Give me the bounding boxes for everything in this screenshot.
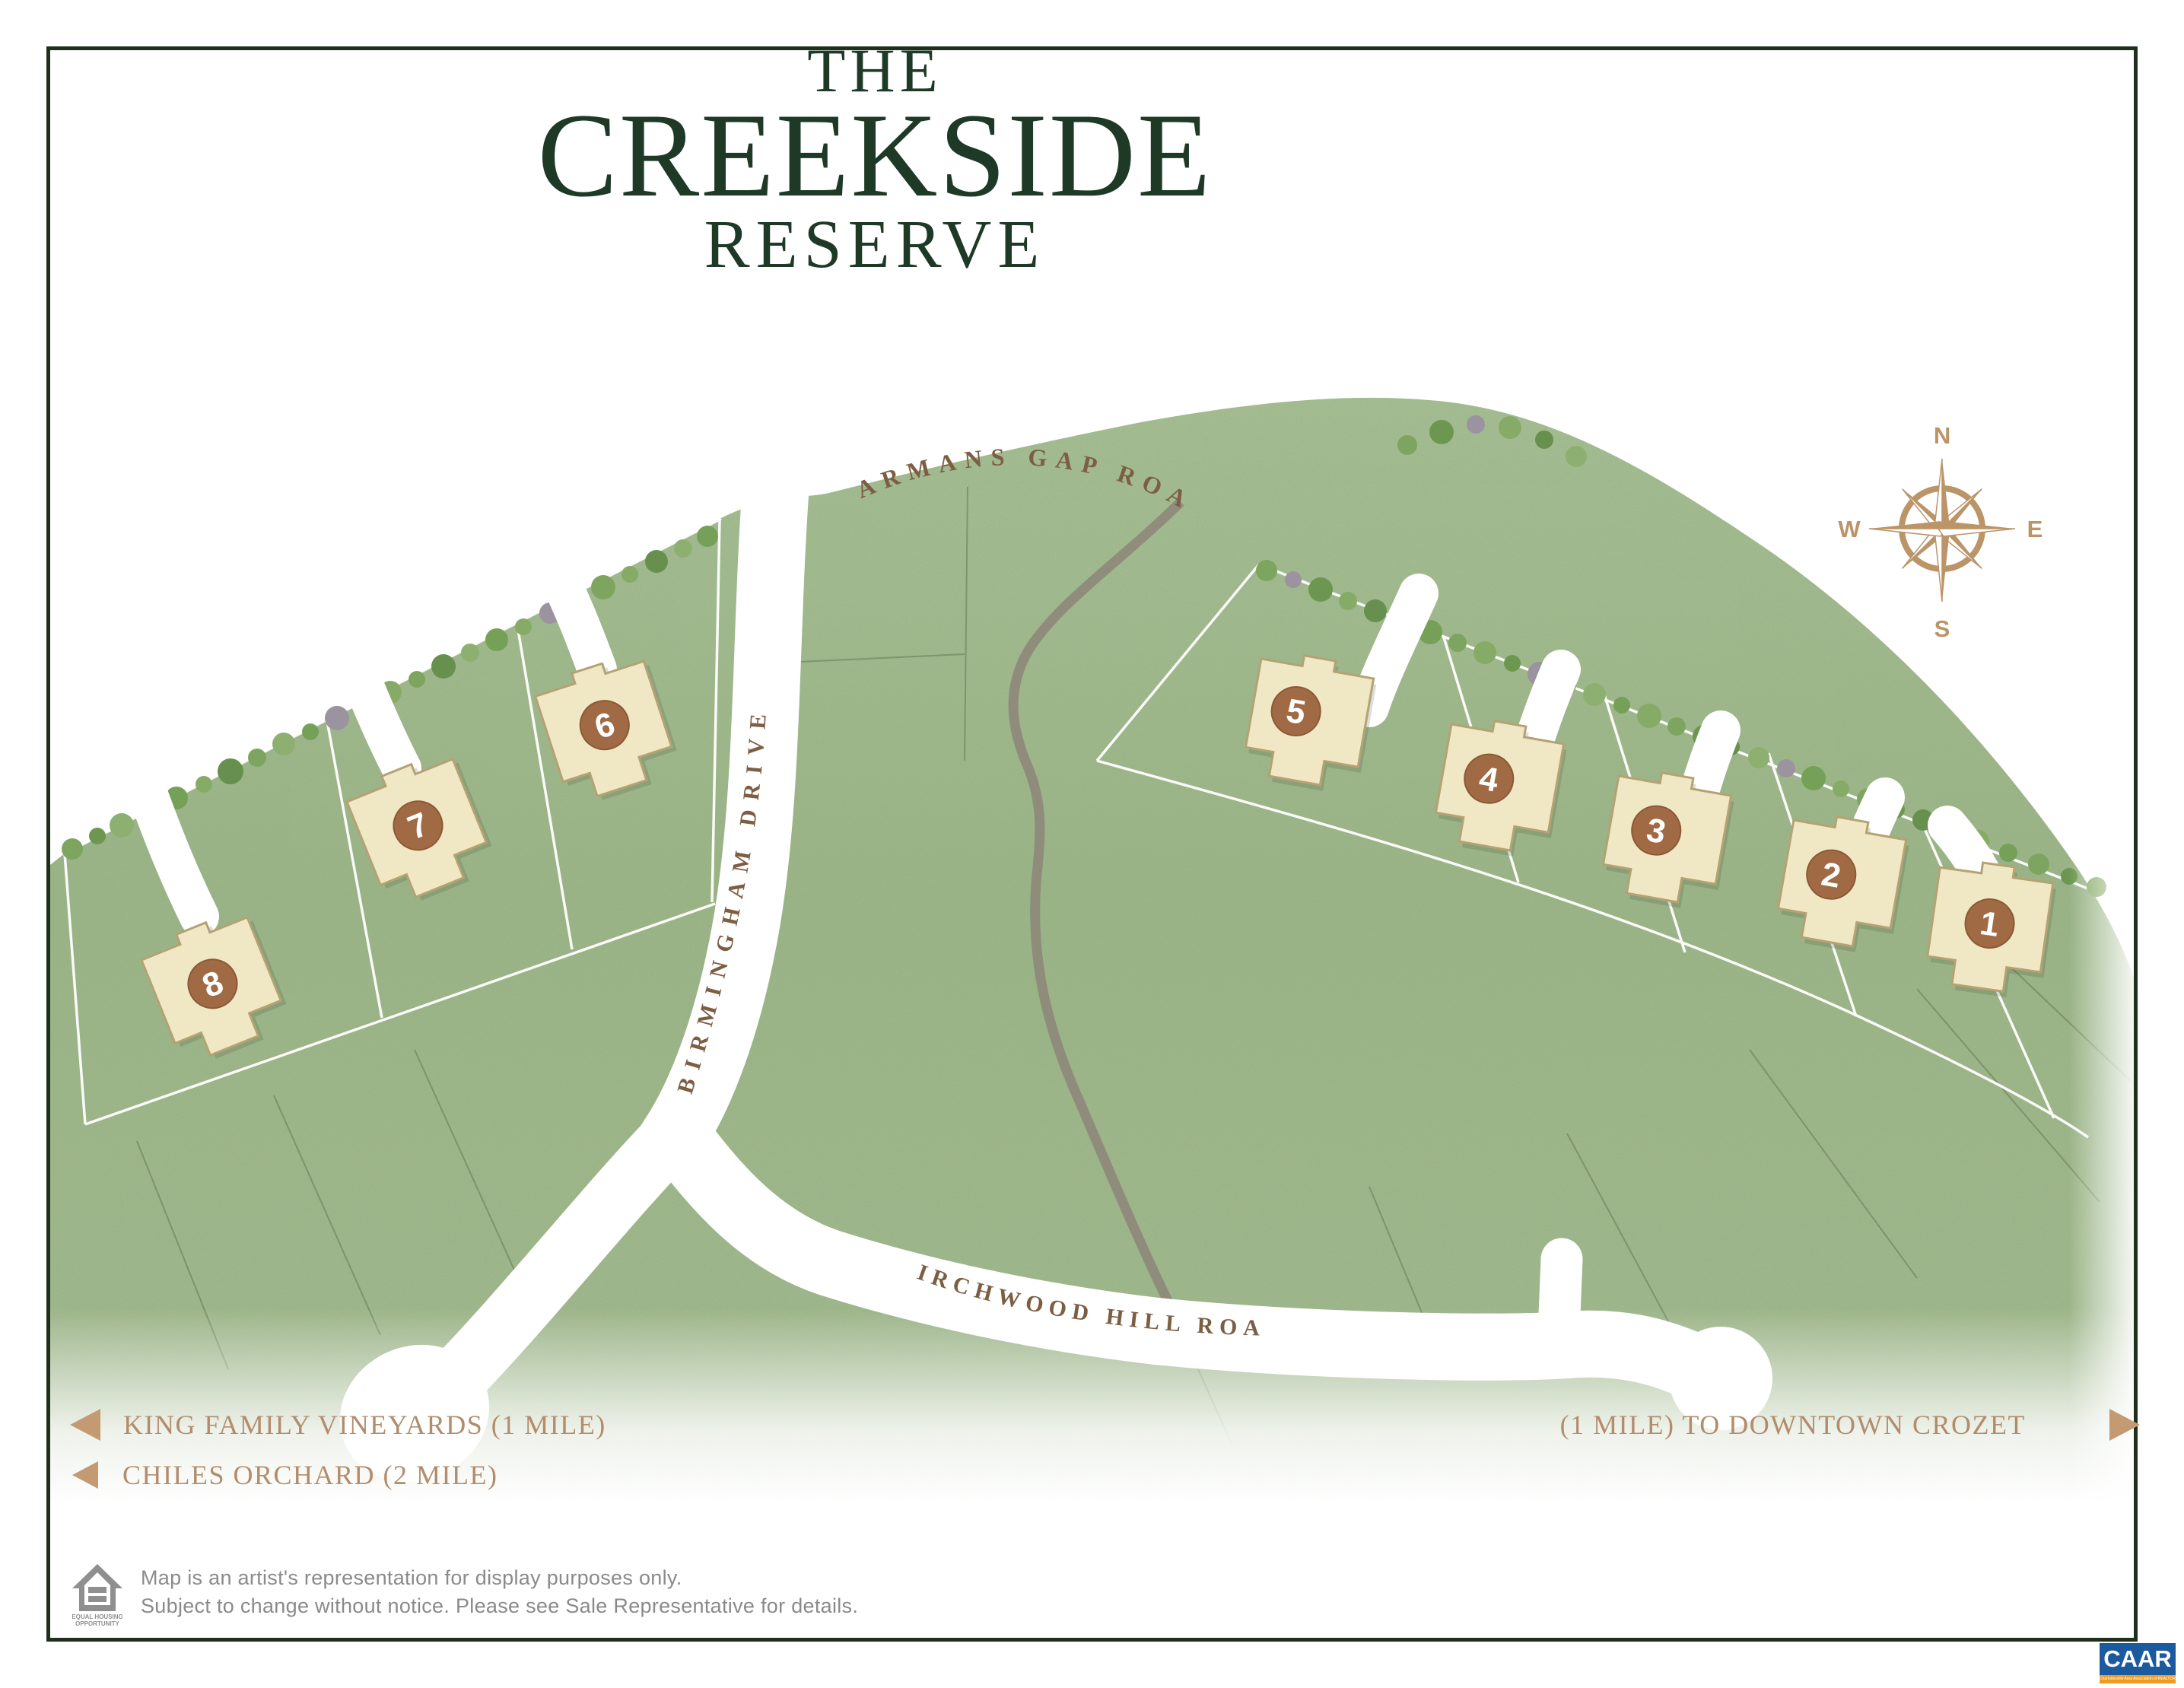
direction-king-family: KING FAMILY VINEYARDS (1 MILE)	[70, 1409, 606, 1441]
caar-acronym: CAAR	[2100, 1643, 2176, 1675]
site-map-page: 8 7 6 5 4 3	[0, 0, 2184, 1688]
direction-downtown-crozet-label: (1 MILE) TO DOWNTOWN CROZET	[1560, 1409, 2026, 1441]
compass-rose-icon: N E S W	[1838, 422, 2043, 642]
compass-west-label: W	[1838, 516, 1861, 542]
disclaimer-text: Map is an artist's representation for di…	[141, 1564, 858, 1620]
svg-text:OPPORTUNITY: OPPORTUNITY	[75, 1620, 119, 1627]
direction-king-family-label: KING FAMILY VINEYARDS (1 MILE)	[123, 1409, 606, 1441]
east-arrow-icon	[2109, 1409, 2140, 1441]
disclaimer: EQUAL HOUSING OPPORTUNITY Map is an arti…	[72, 1564, 858, 1629]
direction-downtown-crozet: (1 MILE) TO DOWNTOWN CROZET	[1560, 1409, 2140, 1441]
disclaimer-line-1: Map is an artist's representation for di…	[141, 1564, 858, 1592]
right-fade	[2069, 365, 2141, 1552]
compass-north-label: N	[1934, 422, 1950, 449]
west-arrow-icon	[72, 1461, 98, 1489]
svg-text:EQUAL HOUSING: EQUAL HOUSING	[72, 1613, 122, 1620]
disclaimer-line-2: Subject to change without notice. Please…	[141, 1592, 858, 1620]
equal-housing-opportunity-icon: EQUAL HOUSING OPPORTUNITY	[72, 1564, 122, 1629]
caar-tagline: Charlottesville Area Association of REAL…	[2100, 1675, 2176, 1683]
west-arrow-icon	[70, 1409, 100, 1441]
caar-logo: CAAR Charlottesville Area Association of…	[2100, 1643, 2176, 1683]
development-title: THE CREEKSIDE RESERVE	[426, 38, 1324, 281]
direction-chiles-orchard: CHILES ORCHARD (2 MILE)	[72, 1459, 498, 1491]
compass-east-label: E	[2027, 516, 2043, 542]
direction-chiles-orchard-label: CHILES ORCHARD (2 MILE)	[122, 1459, 498, 1491]
title-line-creekside: CREEKSIDE	[426, 103, 1324, 208]
compass-south-label: S	[1934, 615, 1950, 642]
